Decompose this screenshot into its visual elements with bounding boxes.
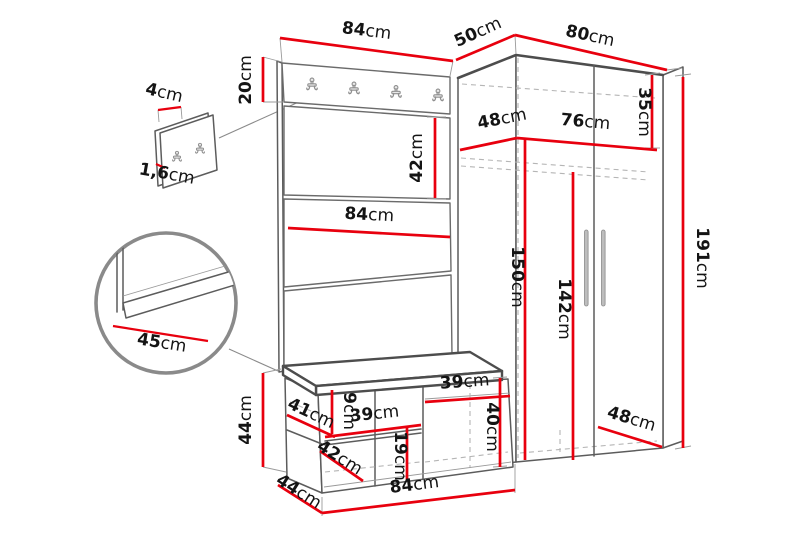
door-handle-icon (602, 230, 606, 306)
dim-panel-width: 84cm (341, 18, 393, 44)
diagram-canvas: 84cm 20cm 42cm 84cm 4cm 1,6cm 45cm 50cm … (0, 0, 800, 533)
dim-panel-mid-width: 84cm (344, 204, 395, 227)
dim-bench-height: 44cm (236, 395, 256, 445)
dim-wardrobe-top-section: 35cm (634, 87, 654, 137)
dim-wardrobe-height: 191cm (692, 227, 712, 288)
dim-panel-strip-height: 20cm (236, 55, 256, 105)
door-handle-icon (585, 230, 589, 306)
dim-wardrobe-top-depth: 50cm (451, 13, 504, 51)
dim-wardrobe-inner-height: 142cm (554, 278, 574, 339)
dim-wardrobe-left-inner-height: 150cm (507, 246, 527, 307)
dimension-diagram: 84cm 20cm 42cm 84cm 4cm 1,6cm 45cm 50cm … (0, 0, 800, 533)
wardrobe-right-side (663, 67, 683, 448)
dim-bench-lower-height: 19cm (390, 431, 410, 481)
dim-wardrobe-width: 80cm (564, 21, 617, 51)
dim-bench-right-width: 39cm (439, 370, 490, 393)
dim-detail-thickness: 4cm (143, 79, 184, 107)
dim-bench-right-height: 40cm (482, 402, 502, 452)
dim-panel-section-height: 42cm (407, 133, 427, 183)
